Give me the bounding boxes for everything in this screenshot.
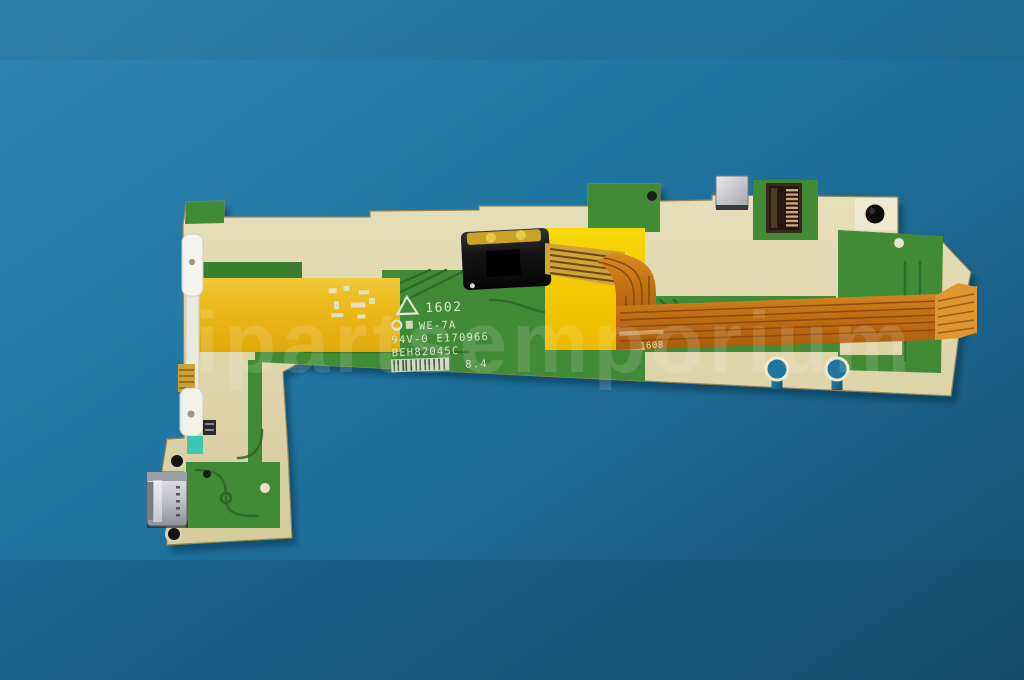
via-black <box>203 470 211 478</box>
jack-slot <box>486 249 521 277</box>
button-hole <box>189 259 195 265</box>
board-hole-small <box>647 191 657 201</box>
small-chip <box>203 420 216 435</box>
button-hole <box>188 411 195 418</box>
micro-usb-connector <box>147 472 188 528</box>
board-to-board-connector <box>766 183 802 233</box>
chip-stripe <box>205 423 214 425</box>
shield-base <box>716 205 748 210</box>
usb-top-face <box>147 472 187 481</box>
usb-opening <box>147 482 154 520</box>
tab-hole <box>866 205 885 224</box>
soldermask-extension <box>186 462 280 528</box>
via-white <box>894 238 904 248</box>
pcb-product-photo: 1602 WE-7A 94V-0 E170966 BEH82045C 8.4 <box>0 0 1024 680</box>
mounting-hole <box>167 527 182 542</box>
teal-marker <box>187 436 203 454</box>
camera-hole-tab <box>855 198 897 230</box>
volume-button <box>182 234 203 296</box>
soldermask-topleft-tab <box>185 201 224 224</box>
shield-body <box>716 176 748 208</box>
soldermask-top-tab <box>588 184 660 232</box>
metal-shield <box>716 176 748 210</box>
usb-highlight <box>153 480 162 522</box>
connector-groove <box>771 188 777 228</box>
chip-body <box>203 420 216 435</box>
connector-pins <box>786 189 798 227</box>
background-tint <box>0 0 1024 60</box>
chip-stripe <box>205 429 214 431</box>
via-white <box>260 483 270 493</box>
background-shadow-band <box>0 560 1024 680</box>
watermark-text: ipartsemporium <box>195 295 915 391</box>
photo-canvas: 1602 WE-7A 94V-0 E170966 BEH82045C 8.4 <box>0 0 1024 680</box>
headphone-jack <box>461 228 552 291</box>
mounting-hole <box>170 454 185 469</box>
tab-hole-highlight <box>869 208 875 214</box>
